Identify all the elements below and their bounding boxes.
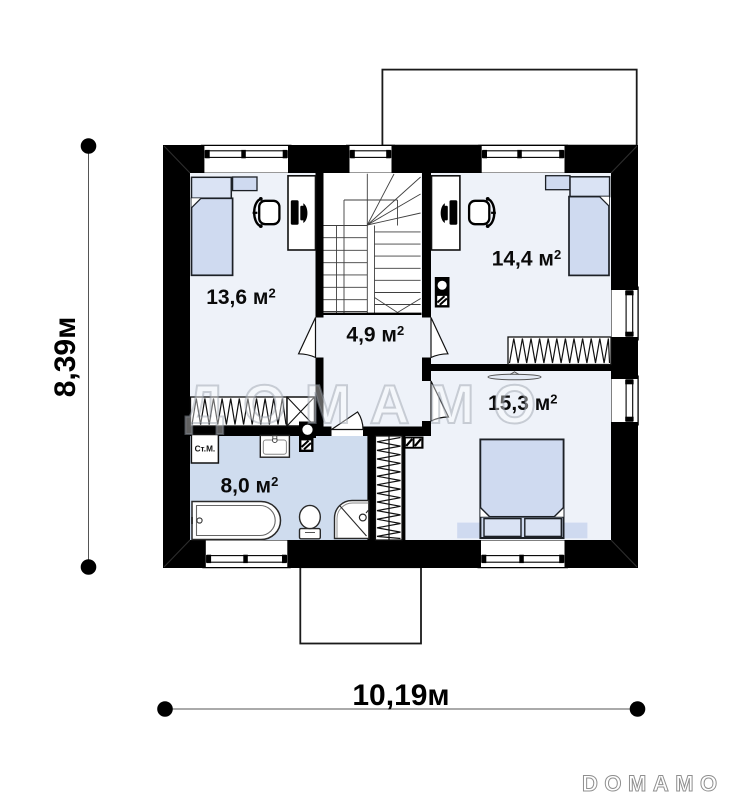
svg-text:DOMAMO: DOMAMO (582, 771, 724, 796)
svg-text:ДОМАМО: ДОМАМО (185, 373, 555, 435)
svg-text:8,39м: 8,39м (49, 317, 82, 398)
svg-text:Ст.М.: Ст.М. (195, 445, 216, 454)
svg-text:14,4 м2: 14,4 м2 (492, 247, 561, 271)
svg-text:4,9 м2: 4,9 м2 (346, 323, 404, 347)
svg-text:13,6 м2: 13,6 м2 (206, 286, 275, 310)
svg-text:10,19м: 10,19м (352, 679, 449, 712)
svg-text:8,0 м2: 8,0 м2 (221, 474, 279, 498)
